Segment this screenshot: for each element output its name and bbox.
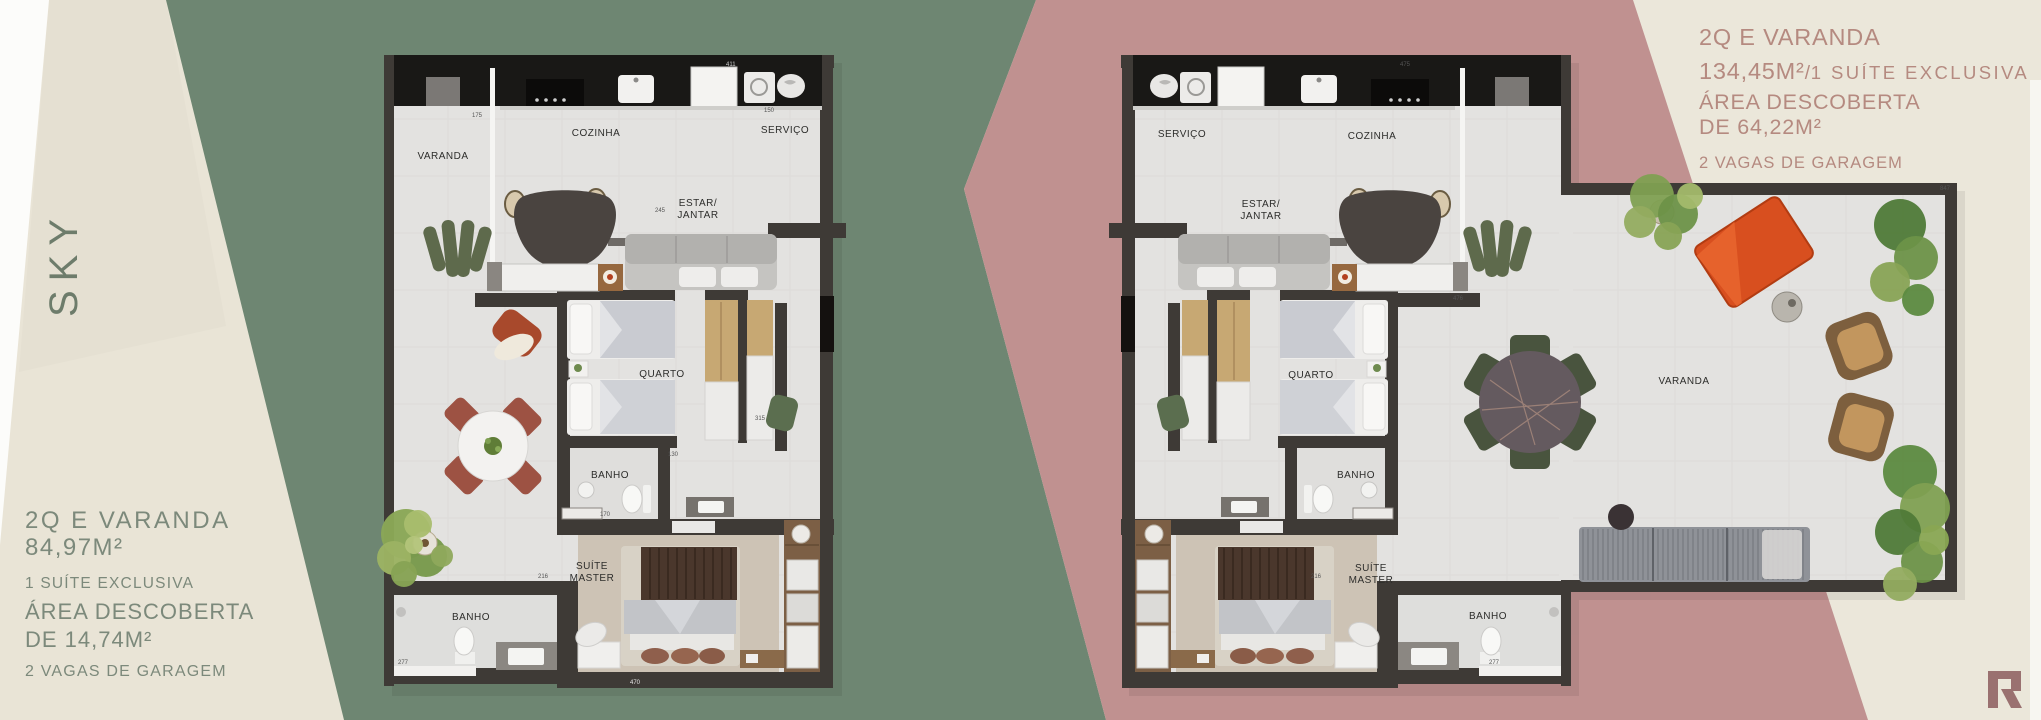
svg-text:SUÍTE: SUÍTE <box>576 559 608 572</box>
svg-text:2Q E VARANDA: 2Q E VARANDA <box>25 507 231 534</box>
svg-text:411: 411 <box>726 62 736 68</box>
svg-text:847: 847 <box>1940 186 1951 192</box>
svg-text:2Q E VARANDA: 2Q E VARANDA <box>1699 24 1881 50</box>
svg-text:MASTER: MASTER <box>570 573 615 584</box>
svg-text:ESTAR/: ESTAR/ <box>1242 199 1280 210</box>
svg-text:134,45M²/1 SUÍTE EXCLUSIVA: 134,45M²/1 SUÍTE EXCLUSIVA <box>1699 58 2029 84</box>
svg-text:150: 150 <box>764 108 775 114</box>
svg-text:84,97M²: 84,97M² <box>25 534 124 561</box>
svg-text:BANHO: BANHO <box>1337 470 1375 481</box>
svg-text:175: 175 <box>472 113 483 119</box>
svg-text:MASTER: MASTER <box>1349 575 1394 586</box>
svg-text:2 VAGAS DE GARAGEM: 2 VAGAS DE GARAGEM <box>25 663 227 680</box>
svg-text:216: 216 <box>1311 574 1322 580</box>
svg-text:QUARTO: QUARTO <box>639 369 684 380</box>
svg-text:SKY: SKY <box>42 210 86 317</box>
svg-text:SUÍTE: SUÍTE <box>1355 561 1387 574</box>
svg-text:2 VAGAS DE GARAGEM: 2 VAGAS DE GARAGEM <box>1699 154 1903 172</box>
svg-text:476: 476 <box>1453 296 1464 302</box>
svg-text:277: 277 <box>1489 660 1500 666</box>
svg-text:SERVIÇO: SERVIÇO <box>1158 129 1206 140</box>
svg-text:1 SUÍTE EXCLUSIVA: 1 SUÍTE EXCLUSIVA <box>25 575 194 592</box>
svg-text:ÁREA DESCOBERTA: ÁREA DESCOBERTA <box>25 599 254 624</box>
svg-text:BANHO: BANHO <box>1469 611 1507 622</box>
svg-text:COZINHA: COZINHA <box>572 128 621 139</box>
svg-text:COZINHA: COZINHA <box>1348 131 1397 142</box>
svg-text:SERVIÇO: SERVIÇO <box>761 125 809 136</box>
svg-text:BANHO: BANHO <box>452 612 490 623</box>
svg-text:JANTAR: JANTAR <box>677 210 718 221</box>
svg-text:VARANDA: VARANDA <box>417 151 468 162</box>
svg-text:DE 14,74M²: DE 14,74M² <box>25 627 152 652</box>
svg-text:ÁREA DESCOBERTA: ÁREA DESCOBERTA <box>1699 89 1921 114</box>
svg-text:DE 64,22M²: DE 64,22M² <box>1699 115 1822 139</box>
svg-text:JANTAR: JANTAR <box>1240 211 1281 222</box>
svg-text:245: 245 <box>655 208 666 214</box>
svg-text:130: 130 <box>668 452 679 458</box>
svg-text:315: 315 <box>755 416 766 422</box>
svg-text:BANHO: BANHO <box>591 470 629 481</box>
svg-text:VARANDA: VARANDA <box>1658 376 1709 387</box>
svg-text:470: 470 <box>630 680 641 686</box>
svg-text:170: 170 <box>600 512 611 518</box>
svg-text:216: 216 <box>538 574 549 580</box>
svg-text:ESTAR/: ESTAR/ <box>679 198 717 209</box>
svg-text:QUARTO: QUARTO <box>1288 370 1333 381</box>
svg-text:277: 277 <box>398 660 409 666</box>
svg-text:475: 475 <box>1400 62 1411 68</box>
